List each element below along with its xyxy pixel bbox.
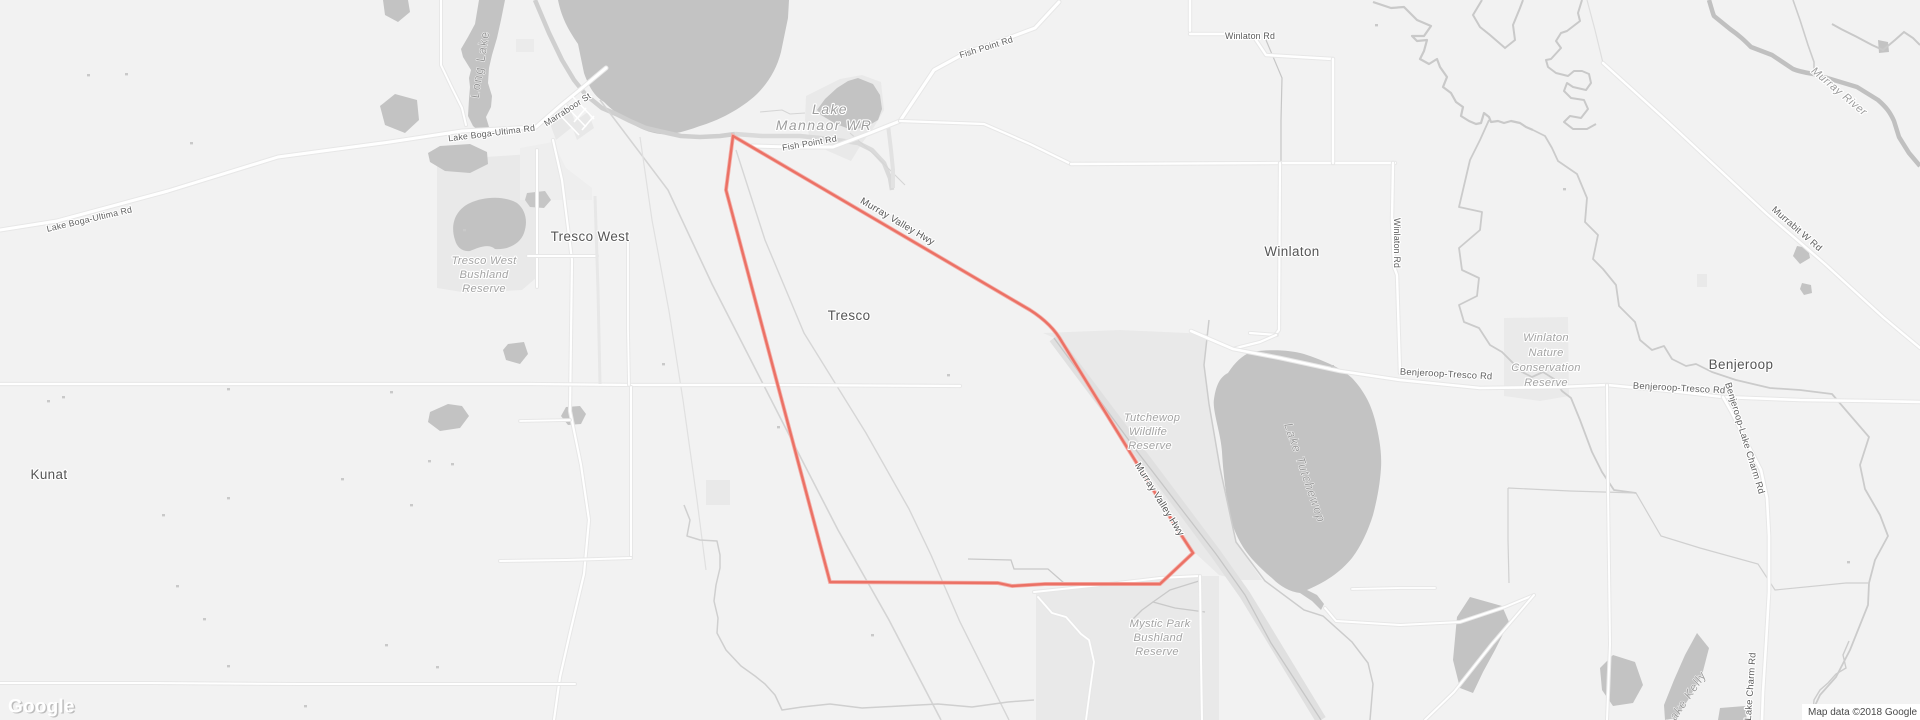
svg-text:Mannaor WR: Mannaor WR (776, 117, 872, 133)
svg-text:Mystic Park: Mystic Park (1129, 618, 1191, 630)
svg-text:Benjeroop: Benjeroop (1709, 357, 1774, 372)
svg-text:Lake: Lake (812, 101, 848, 117)
svg-text:Winlaton: Winlaton (1523, 332, 1569, 344)
svg-text:Winlaton Rd: Winlaton Rd (1392, 218, 1402, 268)
svg-text:Reserve: Reserve (1524, 377, 1568, 389)
svg-text:Nature: Nature (1528, 347, 1563, 359)
svg-text:Reserve: Reserve (1135, 646, 1179, 658)
svg-text:Reserve: Reserve (462, 283, 506, 295)
svg-text:Wildlife: Wildlife (1129, 426, 1167, 438)
svg-text:Reserve: Reserve (1128, 440, 1172, 452)
svg-text:Map data ©2018 Google: Map data ©2018 Google (1808, 707, 1918, 718)
svg-text:Tresco: Tresco (828, 308, 871, 323)
svg-text:Conservation: Conservation (1511, 362, 1581, 374)
svg-text:Kunat: Kunat (31, 467, 68, 482)
svg-text:Tresco West: Tresco West (551, 229, 630, 244)
svg-text:Bushland: Bushland (1133, 632, 1183, 644)
svg-text:Tresco West: Tresco West (451, 255, 517, 267)
svg-text:Winlaton: Winlaton (1264, 244, 1319, 259)
svg-text:Tutchewop: Tutchewop (1124, 412, 1181, 424)
svg-text:Bushland: Bushland (459, 269, 509, 281)
svg-text:Google: Google (8, 697, 75, 718)
svg-text:Winlaton Rd: Winlaton Rd (1225, 31, 1275, 41)
